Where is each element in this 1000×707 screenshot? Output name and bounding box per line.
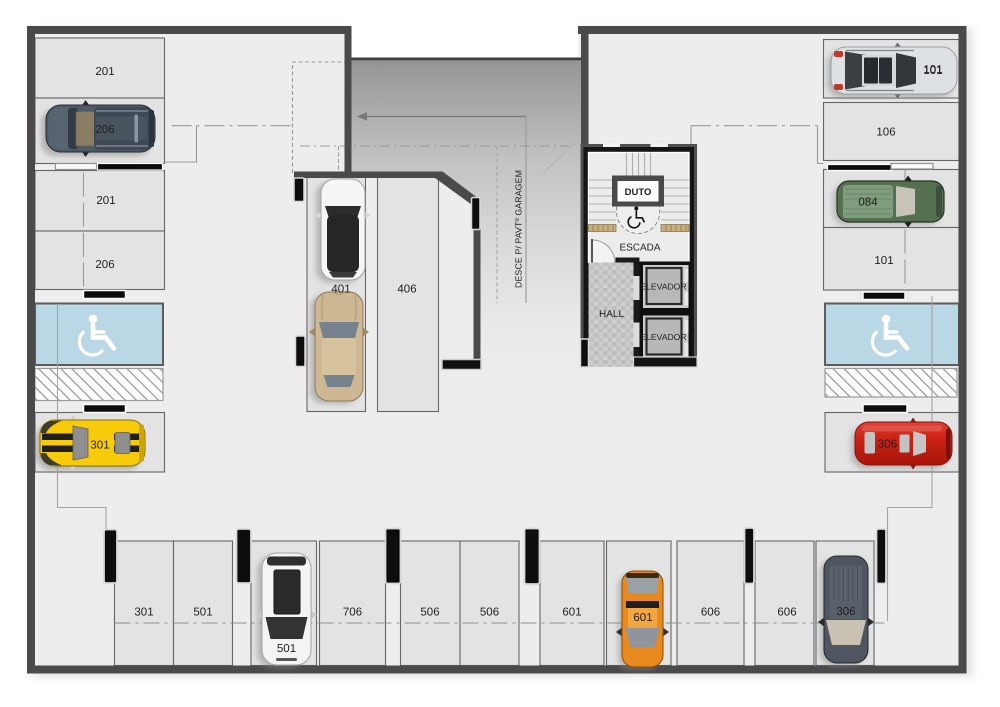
- svg-text:HALL: HALL: [599, 309, 624, 320]
- svg-text:506: 506: [420, 607, 439, 619]
- svg-text:501: 501: [193, 607, 212, 619]
- svg-text:DESCE P/ PAVTº GARAGEM: DESCE P/ PAVTº GARAGEM: [514, 170, 524, 288]
- svg-text:606: 606: [701, 607, 720, 619]
- svg-text:501: 501: [277, 643, 296, 655]
- svg-text:506: 506: [480, 607, 499, 619]
- svg-text:401: 401: [331, 284, 350, 296]
- svg-text:406: 406: [397, 284, 416, 296]
- svg-text:101: 101: [874, 255, 893, 267]
- svg-text:301: 301: [134, 607, 153, 619]
- svg-text:084: 084: [858, 197, 878, 209]
- svg-text:DUTO: DUTO: [625, 187, 652, 198]
- svg-text:201: 201: [96, 195, 115, 207]
- svg-text:206: 206: [95, 124, 114, 136]
- svg-text:601: 601: [633, 612, 652, 624]
- svg-text:706: 706: [343, 607, 362, 619]
- svg-text:ESCADA: ESCADA: [619, 243, 660, 254]
- svg-text:201: 201: [95, 66, 114, 78]
- svg-text:306: 306: [878, 439, 897, 451]
- svg-text:301: 301: [90, 440, 109, 452]
- svg-text:ELEVADOR: ELEVADOR: [640, 332, 686, 342]
- svg-text:306: 306: [836, 606, 855, 618]
- svg-text:206: 206: [95, 259, 114, 271]
- svg-text:606: 606: [777, 607, 796, 619]
- svg-text:106: 106: [876, 127, 895, 139]
- svg-text:ELEVADOR: ELEVADOR: [640, 282, 686, 292]
- svg-text:101: 101: [923, 64, 942, 76]
- svg-text:601: 601: [562, 607, 581, 619]
